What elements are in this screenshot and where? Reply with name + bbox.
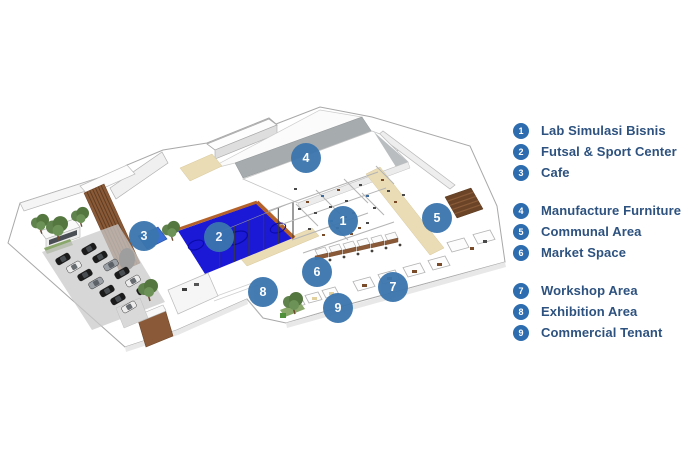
- legend-number-badge: 9: [513, 325, 529, 341]
- legend-item-market-space: 6 Market Space: [513, 242, 681, 263]
- legend-label: Lab Simulasi Bisnis: [541, 123, 666, 138]
- legend-label: Commercial Tenant: [541, 325, 662, 340]
- legend-item-commercial-tenant: 9 Commercial Tenant: [513, 322, 681, 343]
- legend-label: Communal Area: [541, 224, 642, 239]
- map-marker-3: 3: [129, 221, 159, 251]
- legend-label: Workshop Area: [541, 283, 638, 298]
- map-marker-5: 5: [422, 203, 452, 233]
- legend-number-badge: 1: [513, 123, 529, 139]
- legend-number-badge: 5: [513, 224, 529, 240]
- legend-label: Futsal & Sport Center: [541, 144, 677, 159]
- legend-item-lab-simulasi-bisnis: 1 Lab Simulasi Bisnis: [513, 120, 681, 141]
- slide-canvas: 1 2 3 4 5 6 7 8 9 1 Lab Simulasi Bisnis …: [0, 0, 700, 450]
- map-marker-6: 6: [302, 257, 332, 287]
- legend-item-exhibition-area: 8 Exhibition Area: [513, 301, 681, 322]
- map-marker-4: 4: [291, 143, 321, 173]
- legend-number-badge: 8: [513, 304, 529, 320]
- map-marker-2: 2: [204, 222, 234, 252]
- map-marker-7: 7: [378, 272, 408, 302]
- legend-item-workshop-area: 7 Workshop Area: [513, 280, 681, 301]
- legend: 1 Lab Simulasi Bisnis 2 Futsal & Sport C…: [513, 120, 681, 360]
- legend-number-badge: 6: [513, 245, 529, 261]
- map-marker-8: 8: [248, 277, 278, 307]
- legend-label: Market Space: [541, 245, 626, 260]
- legend-number-badge: 3: [513, 165, 529, 181]
- legend-label: Exhibition Area: [541, 304, 637, 319]
- legend-label: Manufacture Furniture: [541, 203, 681, 218]
- legend-number-badge: 2: [513, 144, 529, 160]
- legend-item-communal-area: 5 Communal Area: [513, 221, 681, 242]
- legend-group-1: 1 Lab Simulasi Bisnis 2 Futsal & Sport C…: [513, 120, 681, 183]
- legend-group-3: 7 Workshop Area 8 Exhibition Area 9 Comm…: [513, 280, 681, 343]
- legend-label: Cafe: [541, 165, 570, 180]
- legend-item-cafe: 3 Cafe: [513, 162, 681, 183]
- legend-number-badge: 7: [513, 283, 529, 299]
- map-marker-9: 9: [323, 293, 353, 323]
- legend-item-futsal-sport-center: 2 Futsal & Sport Center: [513, 141, 681, 162]
- map-marker-1: 1: [328, 206, 358, 236]
- legend-number-badge: 4: [513, 203, 529, 219]
- legend-group-2: 4 Manufacture Furniture 5 Communal Area …: [513, 200, 681, 263]
- legend-item-manufacture-furniture: 4 Manufacture Furniture: [513, 200, 681, 221]
